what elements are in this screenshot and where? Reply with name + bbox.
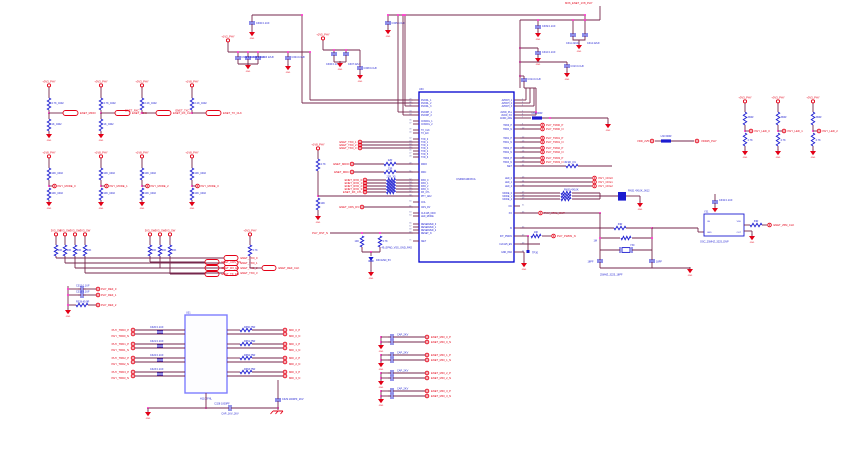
pin-label: ISET — [421, 241, 427, 243]
gnd-symbol — [564, 73, 570, 77]
resistor — [99, 188, 102, 200]
gnd-label: GND — [577, 51, 582, 53]
ic-ref: Y31 — [704, 211, 709, 214]
gnd-label: GND — [47, 208, 52, 210]
label: 22R_X5 — [386, 176, 396, 179]
capacitor — [521, 79, 527, 81]
capacitor — [597, 260, 603, 262]
ic-part-number: OSC_25MHZ_3225_DNP — [700, 241, 729, 244]
pin-label: TRD1_P — [503, 138, 512, 140]
label: 4.7K_0402 — [104, 102, 117, 105]
capacitor — [285, 57, 291, 59]
net-ring-dot — [132, 347, 133, 348]
pin-label: LED_MODE — [421, 216, 434, 218]
net-ring-dot — [351, 163, 352, 164]
power-net-label: +3V3_PHY — [94, 80, 108, 84]
power-flag — [190, 84, 193, 87]
gnd-symbol — [357, 75, 363, 79]
power-net-label: +3V3_PHY — [42, 80, 56, 84]
port-tag — [206, 111, 221, 116]
net-ring-dot — [284, 357, 285, 358]
gnd-symbol — [378, 381, 384, 385]
gnd-symbol — [378, 363, 384, 367]
pin-label: AVDD_AFE — [500, 117, 512, 120]
magnetics-ic-body — [185, 315, 227, 393]
net-ring-dot — [106, 185, 107, 186]
pin-number: 60 — [409, 200, 412, 202]
power-flag — [47, 155, 50, 158]
net-ring-dot — [783, 130, 784, 131]
pin-label: RX_CTL — [421, 192, 431, 194]
ic-ref: U30 — [419, 88, 424, 91]
label: 10K_0402 — [145, 192, 157, 195]
gnd-symbol — [749, 236, 755, 240]
label: R351 75R — [244, 340, 255, 343]
pin-label: DVDDL_2 — [421, 103, 432, 105]
label: 10K_0402 — [52, 172, 64, 175]
power-net-label: MX6_ENET_1V8_PHY — [565, 1, 593, 5]
power-flag — [168, 233, 171, 236]
net-label: ENET_RX_CTL — [343, 190, 362, 194]
junction-dot — [402, 14, 404, 16]
resistor — [316, 159, 319, 171]
gnd-symbol — [378, 399, 384, 403]
label: C316 0.1UF — [76, 291, 90, 294]
capacitor — [229, 405, 231, 411]
net-label: ENET_MDI_1_P — [431, 353, 451, 357]
junction-dot — [67, 294, 69, 296]
label: 10K — [77, 249, 82, 252]
gnd-label: GND — [750, 242, 755, 244]
net-ring-dot — [364, 179, 365, 180]
label: C329 1000PF_2KV — [282, 398, 304, 401]
pin-label: TRD3_P — [503, 158, 512, 160]
gnd-symbol — [810, 151, 816, 155]
net-ring-dot — [769, 224, 770, 225]
gnd-label: GND — [379, 351, 384, 353]
net-ring-dot — [97, 288, 98, 289]
port-tag-label: ENET_TXD_1 — [241, 261, 259, 265]
net-ring-dot — [284, 371, 285, 372]
net-label: PHY_TRD2_N — [112, 362, 130, 366]
gnd-label: GND — [286, 72, 291, 74]
power-flag — [140, 155, 143, 158]
label: R353 75R — [244, 368, 255, 371]
net-label: PHY_MODE_1 — [110, 184, 129, 188]
net-ring-dot — [542, 141, 543, 142]
pin-label: MDC — [421, 172, 427, 174]
gnd-symbol — [189, 202, 195, 206]
net-label: PHY_TRD3_P — [112, 370, 130, 374]
capacitor — [582, 34, 588, 36]
power-net-label: +3V3_PHY — [771, 96, 785, 100]
resistor — [99, 98, 102, 110]
label: 1K_0402 — [104, 123, 115, 126]
label: C312 22UF — [587, 42, 600, 45]
pin-label: TXD_5 — [421, 154, 429, 156]
net-ring-dot — [542, 161, 543, 162]
label: VDD — [737, 221, 742, 223]
port-tag — [156, 111, 171, 116]
gnd-symbol — [535, 33, 541, 37]
pin-number: 46 — [409, 149, 412, 151]
net-label: MDI_3_N — [289, 376, 300, 380]
resistor — [531, 234, 541, 237]
pin-label: DVDDH_1 — [421, 112, 432, 114]
net-label: ENET_MDI_3_N — [431, 394, 451, 398]
net-label: ENET_TXC — [175, 109, 189, 113]
net-label: ENET_TXD_3 — [339, 146, 357, 150]
label: TP30 — [532, 252, 539, 255]
pin-label: TRD0_N — [503, 129, 512, 131]
pin-label: TXD_4 — [421, 151, 429, 153]
junction-dot — [361, 232, 363, 234]
net-ring-dot — [97, 294, 98, 295]
label: 22R — [388, 168, 393, 171]
ethernet-phy-schematic-canvas: U30KSZ9031RNXCA49_EPAD_VSS_GND_PAD29DVDD… — [0, 0, 852, 455]
net-label: VDD_2V5 — [637, 139, 649, 143]
label: 10K_0402 — [104, 172, 116, 175]
power-net-label: +1V8_PHY — [135, 151, 149, 155]
power-flag — [226, 39, 229, 42]
net-label: PHY_REF_0 — [101, 287, 117, 291]
net-label: MDI_1_N — [289, 348, 300, 352]
net-ring-dot — [426, 359, 427, 360]
power-net-label: +1V8_PHY — [42, 151, 56, 155]
gnd-symbol — [687, 269, 693, 273]
gnd-label: GND — [379, 405, 384, 407]
label: 10K — [162, 249, 167, 252]
net-ring-dot — [284, 375, 285, 376]
label: 18PF — [656, 261, 662, 264]
net-label: PHY_REF_2 — [101, 303, 117, 307]
net-ring-dot — [426, 377, 427, 378]
port-tag-label: ENET_TXD_0 — [241, 256, 259, 260]
pin-label: TRD2_P — [503, 148, 512, 150]
power-flag — [248, 233, 251, 236]
net-ring-dot — [364, 188, 365, 189]
pin-label: CLK125_NDO — [421, 213, 436, 215]
resistor — [750, 223, 762, 226]
power-net-label: +3V3_PHY — [806, 96, 820, 100]
label: C313 0.1UF — [571, 65, 585, 68]
pin-number: 42 — [409, 137, 412, 139]
resistor — [387, 184, 396, 187]
gnd-symbol — [605, 124, 611, 128]
gnd-label: GND — [743, 157, 748, 159]
power-net-label: +1V2_PHY — [221, 35, 235, 39]
junction-dot — [257, 51, 259, 53]
junction-dot — [247, 51, 249, 53]
resistor — [561, 191, 571, 194]
net-ring-dot — [818, 130, 819, 131]
net-label: PHY_CFG2 — [599, 184, 614, 188]
capacitor — [535, 52, 541, 54]
net-label: PHY_MODE_2 — [151, 184, 170, 188]
net-label: ENET_MDI_3_P — [431, 389, 451, 393]
label: CAP_1KV_2KV — [221, 413, 239, 416]
resistor — [378, 236, 381, 247]
pin-number: 40 — [409, 131, 412, 133]
gnd-symbol — [98, 134, 104, 138]
net-label: ENET_25M_CLK — [774, 223, 795, 227]
label: 10K_0402 — [145, 172, 157, 175]
label: 4.7K — [816, 139, 821, 142]
net-label: PHY_MODE_0 — [58, 184, 77, 188]
net-label: ENET_CRS_DV — [339, 205, 359, 209]
label: C314 0.1UF — [528, 78, 542, 81]
gnd-label: GND — [606, 130, 611, 132]
net-label: VDD25_PHY — [701, 139, 717, 143]
gnd-symbol — [145, 412, 151, 416]
resistor — [561, 197, 571, 200]
label: 4.7K — [781, 139, 786, 142]
resistor — [387, 190, 396, 193]
capacitor — [391, 375, 393, 381]
gnd-symbol — [46, 202, 52, 206]
net-label: PHY_CFG1 — [599, 180, 614, 184]
net-ring-dot — [132, 343, 133, 344]
capacitor — [157, 331, 163, 333]
power-net-label: 3V3_SW — [165, 229, 176, 233]
power-flag — [99, 155, 102, 158]
junction-dot — [345, 49, 347, 51]
capacitor — [535, 26, 541, 28]
power-flag — [316, 147, 319, 150]
net-label: PHY_LED_1 — [788, 129, 804, 133]
pin-label: CLK125_EN — [499, 244, 512, 246]
pin-number: 48 — [409, 155, 412, 157]
pin-label: RESERVED_0 — [421, 224, 437, 226]
pin-label: RESET_N — [421, 233, 432, 235]
pin-label: XI — [510, 228, 513, 230]
net-ring-dot — [426, 390, 427, 391]
gnd-label: GND — [379, 369, 384, 371]
label: 10K — [152, 249, 157, 252]
pin-label: LED_0 — [505, 178, 513, 180]
net-ring-dot — [197, 185, 198, 186]
power-flag — [148, 233, 151, 236]
power-flag — [47, 84, 50, 87]
power-flag — [776, 100, 779, 103]
label: RN31 4X10K_0612 — [628, 190, 650, 193]
power-net-label: +1V8_PHY — [185, 80, 199, 84]
net-ring-dot — [426, 336, 427, 337]
test-point — [527, 250, 530, 253]
resistor — [387, 181, 396, 184]
label: 4.7K — [253, 249, 258, 252]
resistor — [248, 245, 251, 256]
pin-number: 31 — [522, 204, 525, 206]
label: 330R — [781, 116, 787, 119]
gnd-label: GND — [688, 275, 693, 277]
junction-dot — [379, 232, 381, 234]
gnd-symbol — [712, 208, 718, 212]
label: CAP_2KV — [397, 351, 409, 354]
port-tag-label: ENET_RX_ER — [222, 266, 240, 270]
net-label: PHY_TRD3_P — [546, 156, 564, 160]
capacitor — [235, 57, 241, 59]
net-ring-dot — [542, 128, 543, 129]
label: D30 ESD_5V — [376, 259, 391, 262]
pin-label: CONFIG_1 — [421, 121, 433, 123]
pin-label: GND_PAD — [501, 251, 512, 254]
label: 4.7K — [748, 139, 753, 142]
label: C307 22UF — [348, 63, 361, 66]
pin-label: RXD_1 — [421, 183, 429, 185]
label: 10K — [355, 240, 360, 243]
junction-dot — [397, 14, 399, 16]
ic-pad-note: 49_EPAD_VSS_GND_PAD — [382, 247, 413, 250]
power-net-label: +2V5_PHY — [316, 33, 330, 37]
pin-label: AVDD_PLL — [500, 111, 512, 114]
net-label: ENET_RXC — [125, 109, 139, 113]
junction-dot — [537, 19, 539, 21]
net-ring-dot — [359, 141, 360, 142]
pin-label: TX_EN — [421, 133, 429, 135]
net-ring-dot — [542, 147, 543, 148]
pin-label: LED_1 — [505, 182, 513, 184]
net-ring-dot — [426, 395, 427, 396]
pin-label: TRD0_P — [503, 125, 512, 127]
label: C300 0.1UF — [256, 22, 270, 25]
label: 330R — [816, 116, 822, 119]
pin-label: RESERVED_2 — [421, 230, 437, 232]
capacitor — [157, 373, 163, 375]
junction-dot — [301, 14, 303, 16]
pin-label: RXD_2 — [421, 186, 429, 188]
gnd-label: GND — [250, 38, 255, 40]
net-label: PHY_TRD2_N — [546, 150, 564, 154]
ic-ref: U31 — [186, 312, 191, 315]
capacitor — [385, 22, 391, 24]
pin-label: CONFIG_2 — [421, 124, 433, 126]
power-flag — [99, 84, 102, 87]
power-net-label: 3V3_SW — [80, 229, 91, 233]
junction-dot — [237, 51, 239, 53]
net-ring-dot — [553, 235, 554, 236]
port-tag-label: ENET_CRS_DV — [222, 260, 242, 264]
pin-label: MODE_0 — [503, 193, 513, 195]
label: C323 0.1UF — [150, 368, 164, 371]
label: 330R — [748, 116, 754, 119]
port-tag — [205, 260, 219, 265]
port-tag — [224, 256, 238, 261]
net-label: PHY_TRD1_P — [546, 136, 564, 140]
power-net-label: +1V8_PHY — [185, 151, 199, 155]
capacitor — [712, 201, 718, 203]
resistor — [99, 168, 102, 180]
label: 33R — [754, 220, 759, 223]
pin-label: MDIO — [421, 164, 427, 166]
label: 1K_0402 — [52, 123, 63, 126]
pin-number: 66 — [409, 222, 412, 224]
net-ring-dot — [284, 343, 285, 344]
pin-label: RESERVED_1 — [421, 227, 437, 229]
gnd-symbol — [249, 32, 255, 36]
power-flag — [321, 37, 324, 40]
power-net-label: +1V8_PHY — [311, 143, 325, 147]
net-ring-dot — [284, 361, 285, 362]
capacitor — [649, 260, 655, 262]
power-flag — [190, 155, 193, 158]
pin-number: 37 — [409, 122, 412, 124]
port-tag — [63, 111, 78, 116]
label: L30 600R — [661, 135, 672, 138]
net-label: ENET_MDI_0_N — [431, 340, 451, 344]
power-flag — [54, 233, 57, 236]
gnd-label: GND — [638, 209, 643, 211]
net-ring-dot — [132, 357, 133, 358]
gnd-label: GND — [66, 316, 71, 318]
resistor — [561, 194, 571, 197]
label: 10K — [87, 249, 92, 252]
gnd-label: GND — [246, 71, 251, 73]
label: 2.2K_0402 — [195, 102, 208, 105]
net-label: PHY_TRD0_N — [546, 127, 564, 131]
pin-label: RXD_0 — [421, 180, 429, 182]
power-flag — [158, 233, 161, 236]
junction-dot — [549, 117, 551, 119]
label: CAP_2KV — [397, 387, 409, 390]
pin-number: 64 — [409, 214, 412, 216]
junction-dot — [67, 304, 69, 306]
gnd-label: GND — [338, 69, 343, 71]
net-label: PHY_PWDN_N — [557, 234, 576, 238]
net-ring-dot — [540, 212, 541, 213]
label: CAP_2KV — [397, 333, 409, 336]
resistor-network-block — [618, 192, 626, 201]
resistor — [190, 188, 193, 200]
net-label: MDI_1_P — [289, 342, 300, 346]
net-ring-dot — [594, 181, 595, 182]
label: 25MHZ_3225_18PF — [600, 274, 623, 277]
capacitor — [249, 22, 255, 24]
label: 10K — [58, 249, 63, 252]
net-label: MDI_2_P — [289, 356, 300, 360]
resistor — [743, 133, 746, 146]
pin-label: ISET — [507, 166, 513, 168]
net-ring-dot — [542, 124, 543, 125]
power-flag — [811, 100, 814, 103]
capacitor — [157, 359, 163, 361]
net-ring-dot — [594, 185, 595, 186]
label: 33R — [618, 223, 623, 226]
label: 10K — [534, 231, 539, 234]
junction-dot — [584, 14, 586, 16]
resistor — [99, 119, 102, 131]
net-ring-dot — [284, 347, 285, 348]
net-ring-dot — [284, 329, 285, 330]
crystal — [622, 248, 630, 253]
label: Y30 — [630, 244, 635, 247]
gnd-symbol — [46, 134, 52, 138]
label: C322 0.1UF — [150, 354, 164, 357]
resistor — [140, 168, 143, 180]
label: C311 22UF — [566, 42, 579, 45]
net-ring-dot — [351, 171, 352, 172]
gnd-symbol — [285, 66, 291, 70]
net-ring-dot — [364, 191, 365, 192]
resistor — [776, 112, 779, 125]
capacitor — [157, 345, 163, 347]
port-tag-label: ENET_TX_EN — [222, 272, 239, 276]
label: C310 0.1UF — [542, 51, 556, 54]
net-ring-dot — [594, 177, 595, 178]
pin-label: COL — [421, 202, 426, 204]
net-ring-dot — [542, 137, 543, 138]
port-tag-label: ENET_TXD_3 — [241, 271, 259, 275]
